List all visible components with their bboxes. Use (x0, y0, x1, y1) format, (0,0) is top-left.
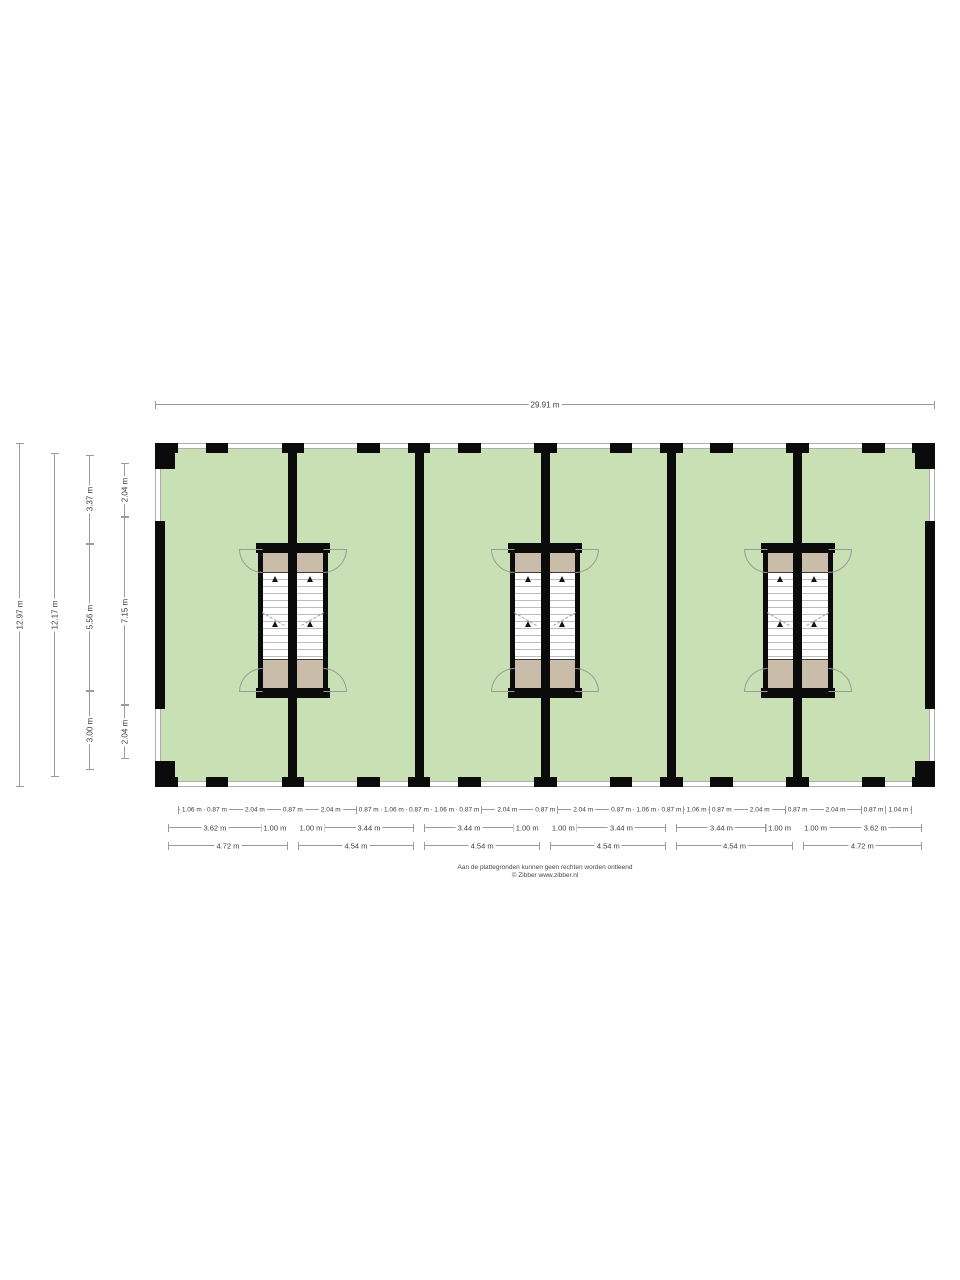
dim-segment: 4.72 m (803, 842, 922, 850)
dim-label: 1.04 m (886, 806, 910, 815)
facade-window-segment (430, 443, 458, 449)
facade-window-segment (683, 443, 711, 449)
page-canvas: 29.91 m12.97 m12.17 m3.37 m5.56 m3.00 m2… (0, 0, 960, 1280)
facade-window-segment (733, 443, 786, 449)
dim-segment: 0.87 m (786, 806, 809, 814)
dim-segment: 12.17 m (51, 453, 59, 777)
dim-label: 4.54 m (721, 842, 748, 851)
dim-segment: 2.04 m (228, 806, 281, 814)
dim-segment: 1.04 m (885, 806, 912, 814)
facade-wall-segment (862, 443, 885, 453)
facade-window-segment (885, 443, 912, 449)
facade-wall-segment (534, 777, 557, 787)
dim-label: 3.37 m (86, 485, 95, 513)
dim-segment: 4.54 m (424, 842, 540, 850)
dim-segment: 0.87 m (357, 806, 380, 814)
stair-flight-right (550, 572, 576, 660)
facade-wall-segment (660, 443, 683, 453)
dim-segment: 7.15 m (121, 517, 129, 705)
dim-label: 0.87 m (609, 806, 633, 815)
corner-wall-block (915, 443, 935, 469)
facade-wall-segment (458, 777, 481, 787)
dim-label: 3.62 m (201, 824, 228, 833)
dim-label: 4.72 m (214, 842, 241, 851)
dim-label: 3.44 m (708, 824, 735, 833)
facade-window-segment (380, 781, 408, 787)
facade-window-segment (380, 443, 408, 449)
facade-wall-segment (282, 777, 305, 787)
wall-left-middle (155, 521, 165, 709)
facade-wall-segment (710, 777, 733, 787)
dim-label: 1.00 m (766, 824, 793, 833)
dim-label: 2.04 m (824, 806, 848, 815)
dim-segment: 3.62 m (168, 824, 262, 832)
dim-segment: 1.06 m (632, 806, 660, 814)
facade-window-segment (885, 781, 912, 787)
dim-segment: 3.00 m (86, 691, 94, 770)
dim-label: 4.54 m (595, 842, 622, 851)
facade-window-segment (632, 443, 660, 449)
dim-label: 0.87 m (281, 806, 305, 815)
dim-segment: 1.00 m (766, 824, 792, 832)
facade-wall-segment (206, 777, 229, 787)
copyright-text: © Zibber www.zibber.nl (155, 872, 935, 880)
dim-label: 2.04 m (571, 806, 595, 815)
dim-segment: 1.06 m (683, 806, 711, 814)
dim-segment: 0.87 m (206, 806, 229, 814)
dim-segment: 1.06 m (380, 806, 408, 814)
dim-label: 1.06 m (634, 806, 658, 815)
disclaimer-text: Aan de plattegronden kunnen geen rechten… (155, 864, 935, 872)
dim-segment: 2.04 m (481, 806, 534, 814)
facade-window-segment (809, 781, 862, 787)
dim-label: 4.54 m (469, 842, 496, 851)
dim-segment: 1.00 m (803, 824, 829, 832)
facade-window-segment (557, 781, 610, 787)
dim-segment: 3.44 m (576, 824, 666, 832)
dim-segment: 0.87 m (862, 806, 885, 814)
stair-direction-arrow-icon (272, 576, 278, 582)
dim-segment: 3.62 m (828, 824, 922, 832)
dim-label: 2.04 m (121, 718, 130, 746)
dim-segment: 0.87 m (458, 806, 481, 814)
facade-window-segment (304, 781, 357, 787)
dim-label: 0.87 m (862, 806, 886, 815)
facade-wall-segment (786, 443, 809, 453)
dim-label: 1.00 m (802, 824, 829, 833)
stair-direction-arrow-icon (525, 576, 531, 582)
facade-window-segment (632, 781, 660, 787)
facade-wall-segment (862, 777, 885, 787)
dim-segment: 1.00 m (550, 824, 576, 832)
facade-wall-segment (357, 777, 380, 787)
facade-window-segment (683, 781, 711, 787)
corner-wall-block (155, 443, 175, 469)
dim-label: 1.06 m (382, 806, 406, 815)
facade-bottom (155, 777, 935, 787)
corner-wall-block (915, 761, 935, 787)
facade-window-segment (178, 781, 206, 787)
facade-wall-segment (408, 777, 431, 787)
facade-wall-segment (357, 443, 380, 453)
dim-label: 0.87 m (786, 806, 810, 815)
dim-segment: 3.37 m (86, 455, 94, 544)
facade-wall-segment (458, 443, 481, 453)
facade-wall-segment (660, 777, 683, 787)
facade-top (155, 443, 935, 453)
dim-segment: 1.00 m (514, 824, 540, 832)
dim-label: 3.00 m (86, 716, 95, 744)
facade-wall-segment (786, 777, 809, 787)
dim-label: 12.97 m (16, 599, 25, 632)
facade-wall-segment (408, 443, 431, 453)
dim-label: 1.00 m (514, 824, 541, 833)
dim-segment: 4.72 m (168, 842, 288, 850)
dim-segment: 2.04 m (304, 806, 357, 814)
stair-direction-arrow-icon (559, 576, 565, 582)
divider-wall (288, 449, 297, 781)
stair-direction-arrow-icon (777, 576, 783, 582)
dim-segment: 1.00 m (262, 824, 288, 832)
divider-wall (667, 449, 676, 781)
dim-label: 1.06 m (432, 806, 456, 815)
facade-wall-segment (610, 443, 633, 453)
corner-wall-block (155, 761, 175, 787)
facade-wall-segment (206, 443, 229, 453)
dim-segment: 2.04 m (733, 806, 786, 814)
dim-label: 0.87 m (533, 806, 557, 815)
facade-wall-segment (710, 443, 733, 453)
facade-window-segment (178, 443, 206, 449)
dim-segment: 5.56 m (86, 544, 94, 691)
facade-window-segment (481, 781, 534, 787)
dim-segment: 12.97 m (16, 443, 24, 787)
dim-label: 0.87 m (457, 806, 481, 815)
facade-window-segment (430, 781, 458, 787)
dim-label: 2.04 m (243, 806, 267, 815)
facade-window-segment (304, 443, 357, 449)
dim-segment: 0.87 m (282, 806, 305, 814)
dim-segment: 0.87 m (710, 806, 733, 814)
dim-segment: 1.06 m (178, 806, 206, 814)
dim-label: 7.15 m (121, 597, 130, 625)
dim-segment: 1.00 m (298, 824, 324, 832)
divider-wall (793, 449, 802, 781)
facade-wall-segment (534, 443, 557, 453)
dim-label: 1.00 m (550, 824, 577, 833)
dim-label: 1.06 m (180, 806, 204, 815)
dim-label: 2.04 m (121, 476, 130, 504)
dim-label: 1.00 m (297, 824, 324, 833)
wall-right-middle (925, 521, 935, 709)
dim-segment: 3.44 m (424, 824, 514, 832)
dim-segment: 1.06 m (430, 806, 458, 814)
dim-label: 2.04 m (495, 806, 519, 815)
dim-label: 3.44 m (356, 824, 383, 833)
dim-segment: 2.04 m (121, 705, 129, 759)
dim-label: 0.87 m (407, 806, 431, 815)
facade-wall-segment (282, 443, 305, 453)
dim-label: 0.87 m (205, 806, 229, 815)
dim-segment: 4.54 m (550, 842, 666, 850)
dim-segment: 3.44 m (676, 824, 766, 832)
dim-segment: 2.04 m (557, 806, 610, 814)
dim-label: 4.72 m (849, 842, 876, 851)
divider-wall (415, 449, 424, 781)
dim-label: 2.04 m (319, 806, 343, 815)
dim-label: 12.17 m (51, 599, 60, 632)
stair-flight-right (297, 572, 323, 660)
dim-segment: 3.44 m (324, 824, 414, 832)
dim-segment: 0.87 m (660, 806, 683, 814)
facade-window-segment (481, 443, 534, 449)
dim-segment: 29.91 m (155, 401, 935, 409)
dim-label: 29.91 m (529, 401, 562, 410)
dim-segment: 0.87 m (610, 806, 633, 814)
dim-label: 1.06 m (685, 806, 709, 815)
dim-label: 1.00 m (261, 824, 288, 833)
facade-wall-segment (610, 777, 633, 787)
facade-window-segment (228, 443, 281, 449)
dim-segment: 2.04 m (809, 806, 862, 814)
dim-label: 5.56 m (86, 603, 95, 631)
facade-window-segment (809, 443, 862, 449)
facade-window-segment (228, 781, 281, 787)
dim-label: 0.87 m (660, 806, 684, 815)
dim-segment: 4.54 m (298, 842, 414, 850)
dim-segment: 2.04 m (121, 463, 129, 517)
dim-label: 0.87 m (710, 806, 734, 815)
stair-direction-arrow-icon (307, 576, 313, 582)
disclaimer: Aan de plattegronden kunnen geen rechten… (155, 864, 935, 880)
facade-window-segment (733, 781, 786, 787)
dim-label: 3.44 m (608, 824, 635, 833)
dim-label: 0.87 m (357, 806, 381, 815)
facade-window-segment (557, 443, 610, 449)
dim-label: 3.44 m (456, 824, 483, 833)
dim-segment: 0.87 m (408, 806, 431, 814)
dim-label: 2.04 m (748, 806, 772, 815)
dim-segment: 0.87 m (534, 806, 557, 814)
dim-label: 4.54 m (342, 842, 369, 851)
dim-label: 3.62 m (862, 824, 889, 833)
stair-direction-arrow-icon (811, 576, 817, 582)
divider-wall (541, 449, 550, 781)
dim-segment: 4.54 m (676, 842, 792, 850)
